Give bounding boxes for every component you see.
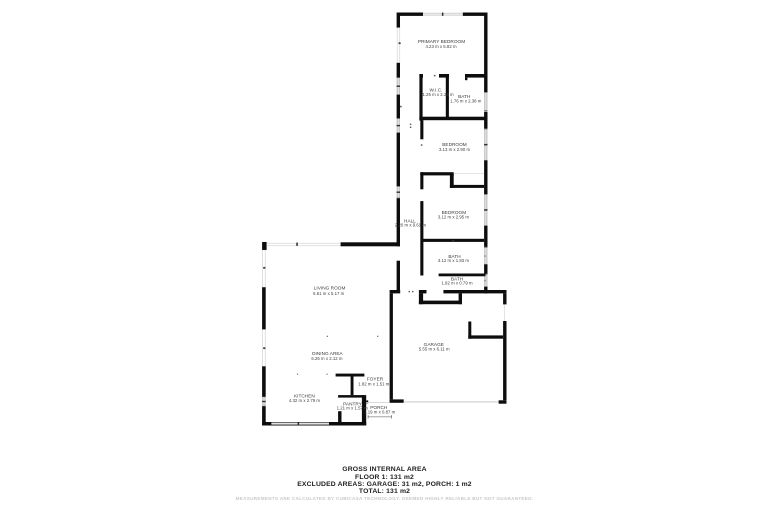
svg-text:1.76 m x 2.38 m: 1.76 m x 2.38 m <box>450 98 482 103</box>
svg-text:3.12 m x 1.83 m: 3.12 m x 1.83 m <box>438 258 470 263</box>
svg-text:DINING AREA: DINING AREA <box>312 351 343 356</box>
svg-text:GROSS INTERNAL AREA: GROSS INTERNAL AREA <box>342 466 426 473</box>
svg-text:4.32 m x 2.79 m: 4.32 m x 2.79 m <box>289 398 321 403</box>
svg-text:6.26 m x 2.12 m: 6.26 m x 2.12 m <box>311 356 343 361</box>
svg-text:1.82 m x 1.51 m: 1.82 m x 1.51 m <box>358 381 390 386</box>
svg-text:4.23 m x 5.82 m: 4.23 m x 5.82 m <box>425 44 457 49</box>
svg-text:5.55 m x 6.11 m: 5.55 m x 6.11 m <box>419 347 450 352</box>
svg-text:1.92 m x 0.79 m: 1.92 m x 0.79 m <box>441 280 473 285</box>
svg-text:MEASUREMENTS ARE CALCULATED BY: MEASUREMENTS ARE CALCULATED BY CUBICASA … <box>236 496 534 501</box>
svg-text:1.25 m x 2.36 m: 1.25 m x 2.36 m <box>422 92 454 97</box>
svg-text:6.61 m x 5.17 m: 6.61 m x 5.17 m <box>313 291 345 296</box>
svg-text:TOTAL: 131 m2: TOTAL: 131 m2 <box>359 488 410 495</box>
svg-text:3.12 m x 2.95 m: 3.12 m x 2.95 m <box>438 215 470 220</box>
svg-text:3.13 m x 2.90 m: 3.13 m x 2.90 m <box>439 147 471 152</box>
svg-text:1.19 m x 0.87 m: 1.19 m x 0.87 m <box>364 409 396 414</box>
svg-text:2.20 m x 9.61 m: 2.20 m x 9.61 m <box>395 223 427 228</box>
svg-text:FLOOR 1: 131 m2: FLOOR 1: 131 m2 <box>355 474 414 481</box>
